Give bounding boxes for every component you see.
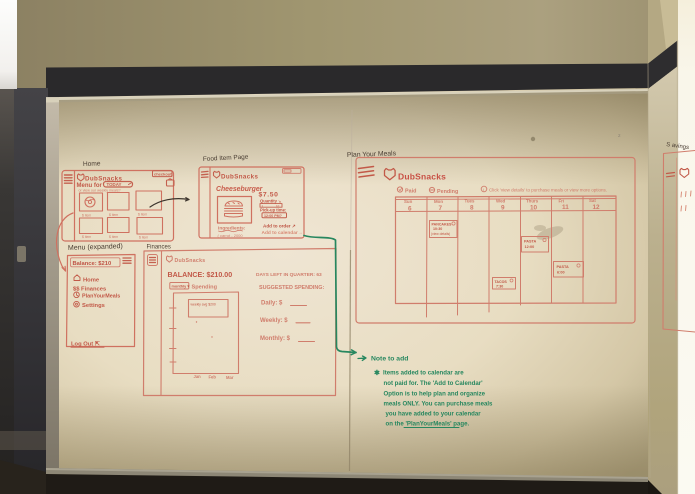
svg-text:DubSnacks: DubSnacks — [175, 258, 206, 264]
svg-text:Items added to calendar are: Items added to calendar are — [383, 370, 464, 377]
svg-text:Log Out ⇱: Log Out ⇱ — [71, 341, 100, 348]
svg-text:Spending: Spending — [192, 285, 218, 291]
svg-text:8: 8 — [470, 205, 474, 212]
svg-text:Note to add: Note to add — [371, 356, 408, 363]
svg-text:$ item: $ item — [109, 213, 118, 217]
svg-text:weekly avg $200: weekly avg $200 — [191, 303, 216, 307]
svg-text:monthly ▾: monthly ▾ — [172, 285, 191, 289]
svg-text:i: i — [483, 187, 484, 192]
svg-text:SUGGESTED SPENDING:: SUGGESTED SPENDING: — [259, 285, 325, 291]
svg-text:BALANCE: $210.00: BALANCE: $210.00 — [168, 271, 233, 279]
svg-text:Thurs: Thurs — [526, 199, 539, 204]
svg-text:on the 'PlanYourMeals' page.: on the 'PlanYourMeals' page. — [386, 421, 470, 428]
svg-text:Quantity ↘: Quantity ↘ — [260, 199, 281, 204]
svg-text:$7.50: $7.50 — [259, 192, 279, 199]
svg-text:you have added to your calenda: you have added to your calendar — [386, 411, 482, 418]
svg-text:Feb: Feb — [209, 375, 217, 380]
svg-text:$ item: $ item — [82, 214, 91, 218]
svg-text:7:30: 7:30 — [496, 285, 503, 289]
svg-text:( carrot - 2000: ( carrot - 2000 — [218, 233, 244, 238]
svg-text:DAYS LEFT IN QUARTER: 63: DAYS LEFT IN QUARTER: 63 — [256, 272, 322, 278]
svg-text:Add to calendar→: Add to calendar→ — [262, 230, 303, 236]
svg-text:DubSnacks: DubSnacks — [221, 174, 258, 181]
svg-text:TACOS: TACOS — [495, 280, 508, 284]
svg-text:DubSnacks: DubSnacks — [398, 172, 446, 182]
svg-text:7: 7 — [439, 205, 443, 212]
svg-text:Mon: Mon — [434, 199, 443, 204]
svg-text:not paid for. The 'Add to Cale: not paid for. The 'Add to Calendar' — [384, 380, 484, 387]
svg-text:PlanYourMeals: PlanYourMeals — [82, 294, 120, 300]
svg-text:PANCAKES: PANCAKES — [432, 223, 453, 227]
svg-text:Click 'view details' to purcha: Click 'view details' to purchase meals o… — [489, 188, 607, 193]
svg-text:Paid: Paid — [405, 189, 416, 195]
svg-text:Home: Home — [83, 278, 100, 284]
svg-text:Monthly: $: Monthly: $ — [260, 336, 291, 342]
svg-text:12:00: 12:00 — [525, 245, 535, 249]
svg-text:Sun: Sun — [404, 199, 413, 204]
svg-text:10: 10 — [530, 205, 538, 212]
svg-text:checkout: checkout — [154, 172, 172, 177]
svg-text:Add to order ↗: Add to order ↗ — [263, 224, 296, 229]
svg-text:Cheeseburger: Cheeseburger — [216, 186, 263, 193]
svg-text:Wed: Wed — [496, 199, 506, 204]
svg-text:Weekly: $: Weekly: $ — [260, 318, 288, 324]
svg-text:Pick-up time:: Pick-up time: — [260, 208, 286, 213]
svg-text:meals ONLY. You can purchase m: meals ONLY. You can purchase meals — [384, 401, 494, 408]
svg-text:or view our weekly meals?: or view our weekly meals? — [79, 189, 121, 193]
svg-text:$ item: $ item — [109, 235, 118, 239]
svg-text:12:00 PM?: 12:00 PM? — [264, 214, 282, 218]
svg-text:Tues: Tues — [465, 199, 475, 204]
svg-text:✱: ✱ — [374, 369, 380, 377]
svg-text:Option is to help plan and org: Option is to help plan and organize — [384, 391, 486, 398]
svg-text:Daily: $: Daily: $ — [261, 301, 283, 307]
svg-text:Balance: $210: Balance: $210 — [73, 261, 112, 267]
svg-text:11: 11 — [562, 204, 569, 211]
svg-text:6: 6 — [408, 206, 412, 213]
svg-text:(view details): (view details) — [431, 232, 450, 236]
svg-text:Sat: Sat — [589, 198, 596, 203]
svg-text:Settings: Settings — [82, 303, 105, 309]
svg-text:Finances: Finances — [147, 245, 171, 251]
svg-text:$ item: $ item — [139, 236, 148, 240]
svg-text:Mar: Mar — [226, 375, 234, 380]
svg-text:TODAY: TODAY — [107, 182, 122, 187]
svg-text:$ item: $ item — [82, 235, 91, 239]
svg-text:$ item: $ item — [138, 213, 147, 217]
svg-text:Pending: Pending — [437, 189, 458, 195]
svg-text:10:30: 10:30 — [433, 227, 442, 231]
svg-text:Home: Home — [83, 160, 101, 168]
svg-text:PASTA: PASTA — [557, 265, 570, 269]
svg-text:12: 12 — [593, 204, 601, 211]
svg-text:6:00: 6:00 — [557, 271, 565, 275]
svg-text:PASTA: PASTA — [524, 240, 537, 244]
svg-text:$$ Finances: $$ Finances — [73, 287, 106, 293]
svg-text:Jan: Jan — [194, 374, 202, 379]
svg-text:Fri: Fri — [559, 199, 565, 204]
svg-text:9: 9 — [501, 205, 505, 212]
